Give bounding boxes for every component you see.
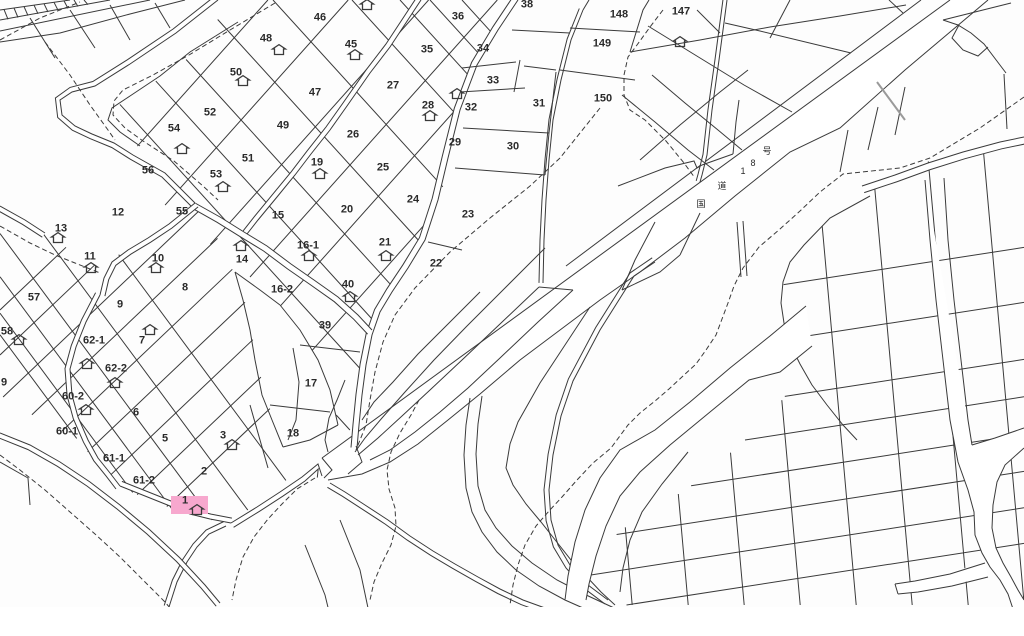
svg-text:8: 8 — [750, 158, 755, 168]
svg-text:18: 18 — [287, 428, 299, 440]
svg-text:56: 56 — [142, 165, 154, 177]
svg-text:23: 23 — [462, 209, 474, 221]
svg-text:28: 28 — [422, 100, 434, 112]
svg-text:62-2: 62-2 — [105, 363, 127, 375]
svg-text:60-2: 60-2 — [62, 391, 84, 403]
svg-text:1: 1 — [740, 166, 745, 176]
svg-text:150: 150 — [594, 93, 612, 105]
svg-text:34: 34 — [477, 43, 490, 55]
svg-text:51: 51 — [242, 153, 254, 165]
svg-text:49: 49 — [277, 120, 289, 132]
svg-text:9: 9 — [117, 299, 123, 311]
svg-text:10: 10 — [152, 253, 164, 265]
svg-text:55: 55 — [176, 206, 188, 218]
svg-text:57: 57 — [28, 292, 40, 304]
svg-text:2: 2 — [201, 466, 207, 478]
svg-text:53: 53 — [210, 169, 222, 181]
svg-text:16-2: 16-2 — [271, 284, 293, 296]
svg-text:50: 50 — [230, 67, 242, 79]
svg-text:35: 35 — [421, 44, 433, 56]
svg-text:22: 22 — [430, 258, 442, 270]
svg-text:道: 道 — [717, 180, 726, 191]
svg-text:20: 20 — [341, 204, 353, 216]
svg-text:26: 26 — [347, 129, 359, 141]
svg-text:25: 25 — [377, 162, 389, 174]
svg-text:19: 19 — [311, 157, 323, 169]
svg-text:8: 8 — [182, 282, 188, 294]
svg-text:147: 147 — [672, 6, 690, 18]
svg-text:14: 14 — [236, 254, 249, 266]
svg-text:15: 15 — [272, 210, 284, 222]
svg-text:17: 17 — [305, 378, 317, 390]
svg-text:29: 29 — [449, 137, 461, 149]
svg-text:40: 40 — [342, 279, 354, 291]
svg-text:7: 7 — [139, 335, 145, 347]
svg-text:9: 9 — [1, 377, 7, 389]
svg-text:24: 24 — [407, 194, 420, 206]
svg-text:46: 46 — [314, 12, 326, 24]
svg-text:号: 号 — [762, 146, 771, 156]
svg-text:30: 30 — [507, 141, 519, 153]
svg-text:13: 13 — [55, 223, 67, 235]
svg-text:48: 48 — [260, 33, 272, 45]
svg-text:1: 1 — [182, 495, 188, 507]
svg-text:45: 45 — [345, 39, 357, 51]
svg-text:60-1: 60-1 — [56, 426, 78, 438]
svg-text:149: 149 — [593, 38, 611, 50]
svg-text:12: 12 — [112, 207, 124, 219]
svg-text:62-1: 62-1 — [83, 335, 105, 347]
svg-text:33: 33 — [487, 75, 499, 87]
svg-text:58: 58 — [1, 326, 13, 338]
svg-text:38: 38 — [521, 0, 533, 11]
svg-text:61-2: 61-2 — [133, 475, 155, 487]
svg-text:27: 27 — [387, 80, 399, 92]
svg-text:52: 52 — [204, 107, 216, 119]
svg-text:11: 11 — [84, 251, 96, 263]
svg-text:16-1: 16-1 — [297, 240, 319, 252]
svg-text:21: 21 — [379, 237, 391, 249]
svg-text:36: 36 — [452, 11, 464, 23]
svg-text:148: 148 — [610, 9, 628, 21]
svg-text:61-1: 61-1 — [103, 453, 125, 465]
svg-text:5: 5 — [162, 433, 168, 445]
svg-text:31: 31 — [533, 98, 545, 110]
svg-text:54: 54 — [168, 123, 181, 135]
svg-text:国: 国 — [696, 199, 705, 209]
svg-text:39: 39 — [319, 320, 331, 332]
svg-text:47: 47 — [309, 87, 321, 99]
svg-text:32: 32 — [465, 102, 477, 114]
svg-text:3: 3 — [220, 430, 226, 442]
svg-text:6: 6 — [133, 407, 139, 419]
